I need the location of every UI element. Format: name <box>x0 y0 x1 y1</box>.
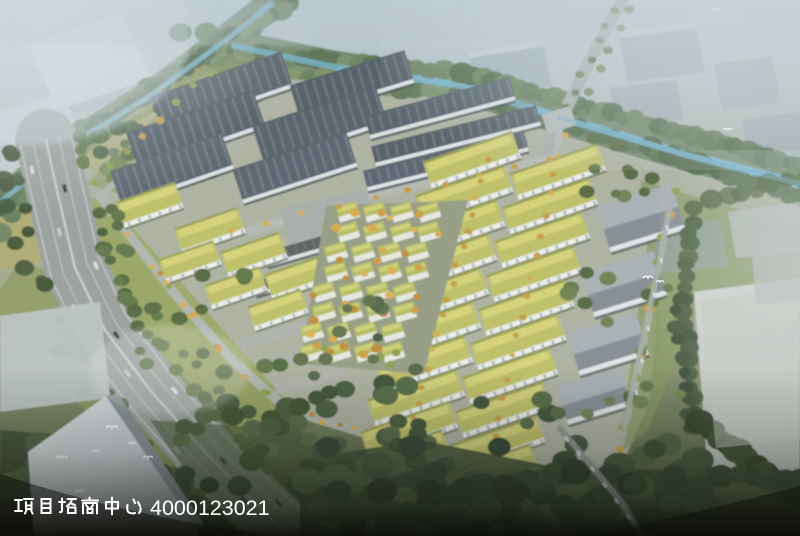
svg-text:4000123021: 4000123021 <box>150 496 270 520</box>
